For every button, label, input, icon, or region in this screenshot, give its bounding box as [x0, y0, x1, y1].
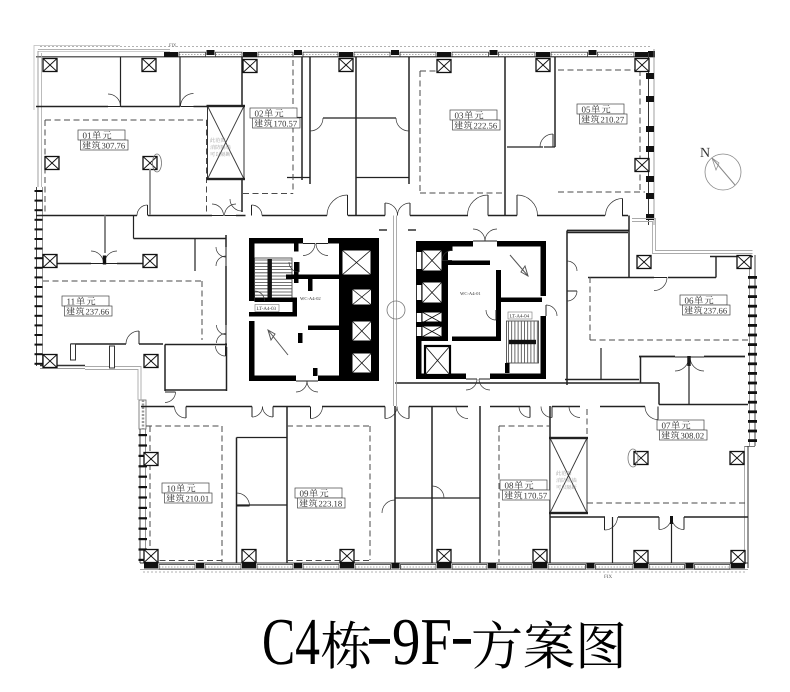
svg-text:11: 11: [67, 296, 76, 306]
svg-text:170.57: 170.57: [274, 118, 298, 128]
svg-text:09: 09: [300, 488, 310, 498]
svg-text:FIX: FIX: [169, 43, 177, 48]
svg-text:WC-A4-01: WC-A4-01: [460, 291, 481, 296]
svg-text:237.66: 237.66: [86, 306, 110, 316]
svg-text:N: N: [700, 146, 710, 161]
svg-text:210.01: 210.01: [186, 493, 210, 503]
svg-text:06: 06: [685, 295, 695, 305]
svg-text:10: 10: [167, 483, 177, 493]
svg-text:08: 08: [505, 480, 515, 490]
svg-text:01: 01: [83, 130, 92, 140]
svg-text:307.76: 307.76: [102, 140, 126, 150]
svg-text:170.57: 170.57: [524, 490, 548, 500]
svg-text:03: 03: [455, 110, 465, 120]
svg-text:9F: 9F: [392, 605, 452, 679]
svg-text:LT-A4-04: LT-A4-04: [510, 314, 530, 320]
svg-text:WC-A4-02: WC-A4-02: [300, 296, 321, 301]
svg-text:222.56: 222.56: [474, 120, 498, 130]
svg-text:07: 07: [662, 420, 672, 430]
svg-text:02: 02: [255, 108, 264, 118]
svg-text:210.27: 210.27: [601, 114, 625, 124]
svg-text:223.18: 223.18: [319, 498, 343, 508]
svg-text:FIX: FIX: [604, 574, 612, 580]
svg-text:05: 05: [582, 104, 592, 114]
svg-text:C4: C4: [262, 605, 320, 679]
svg-text:LT-A4-03: LT-A4-03: [257, 306, 277, 312]
svg-text:308.02: 308.02: [681, 430, 705, 440]
svg-text:237.66: 237.66: [704, 305, 728, 315]
